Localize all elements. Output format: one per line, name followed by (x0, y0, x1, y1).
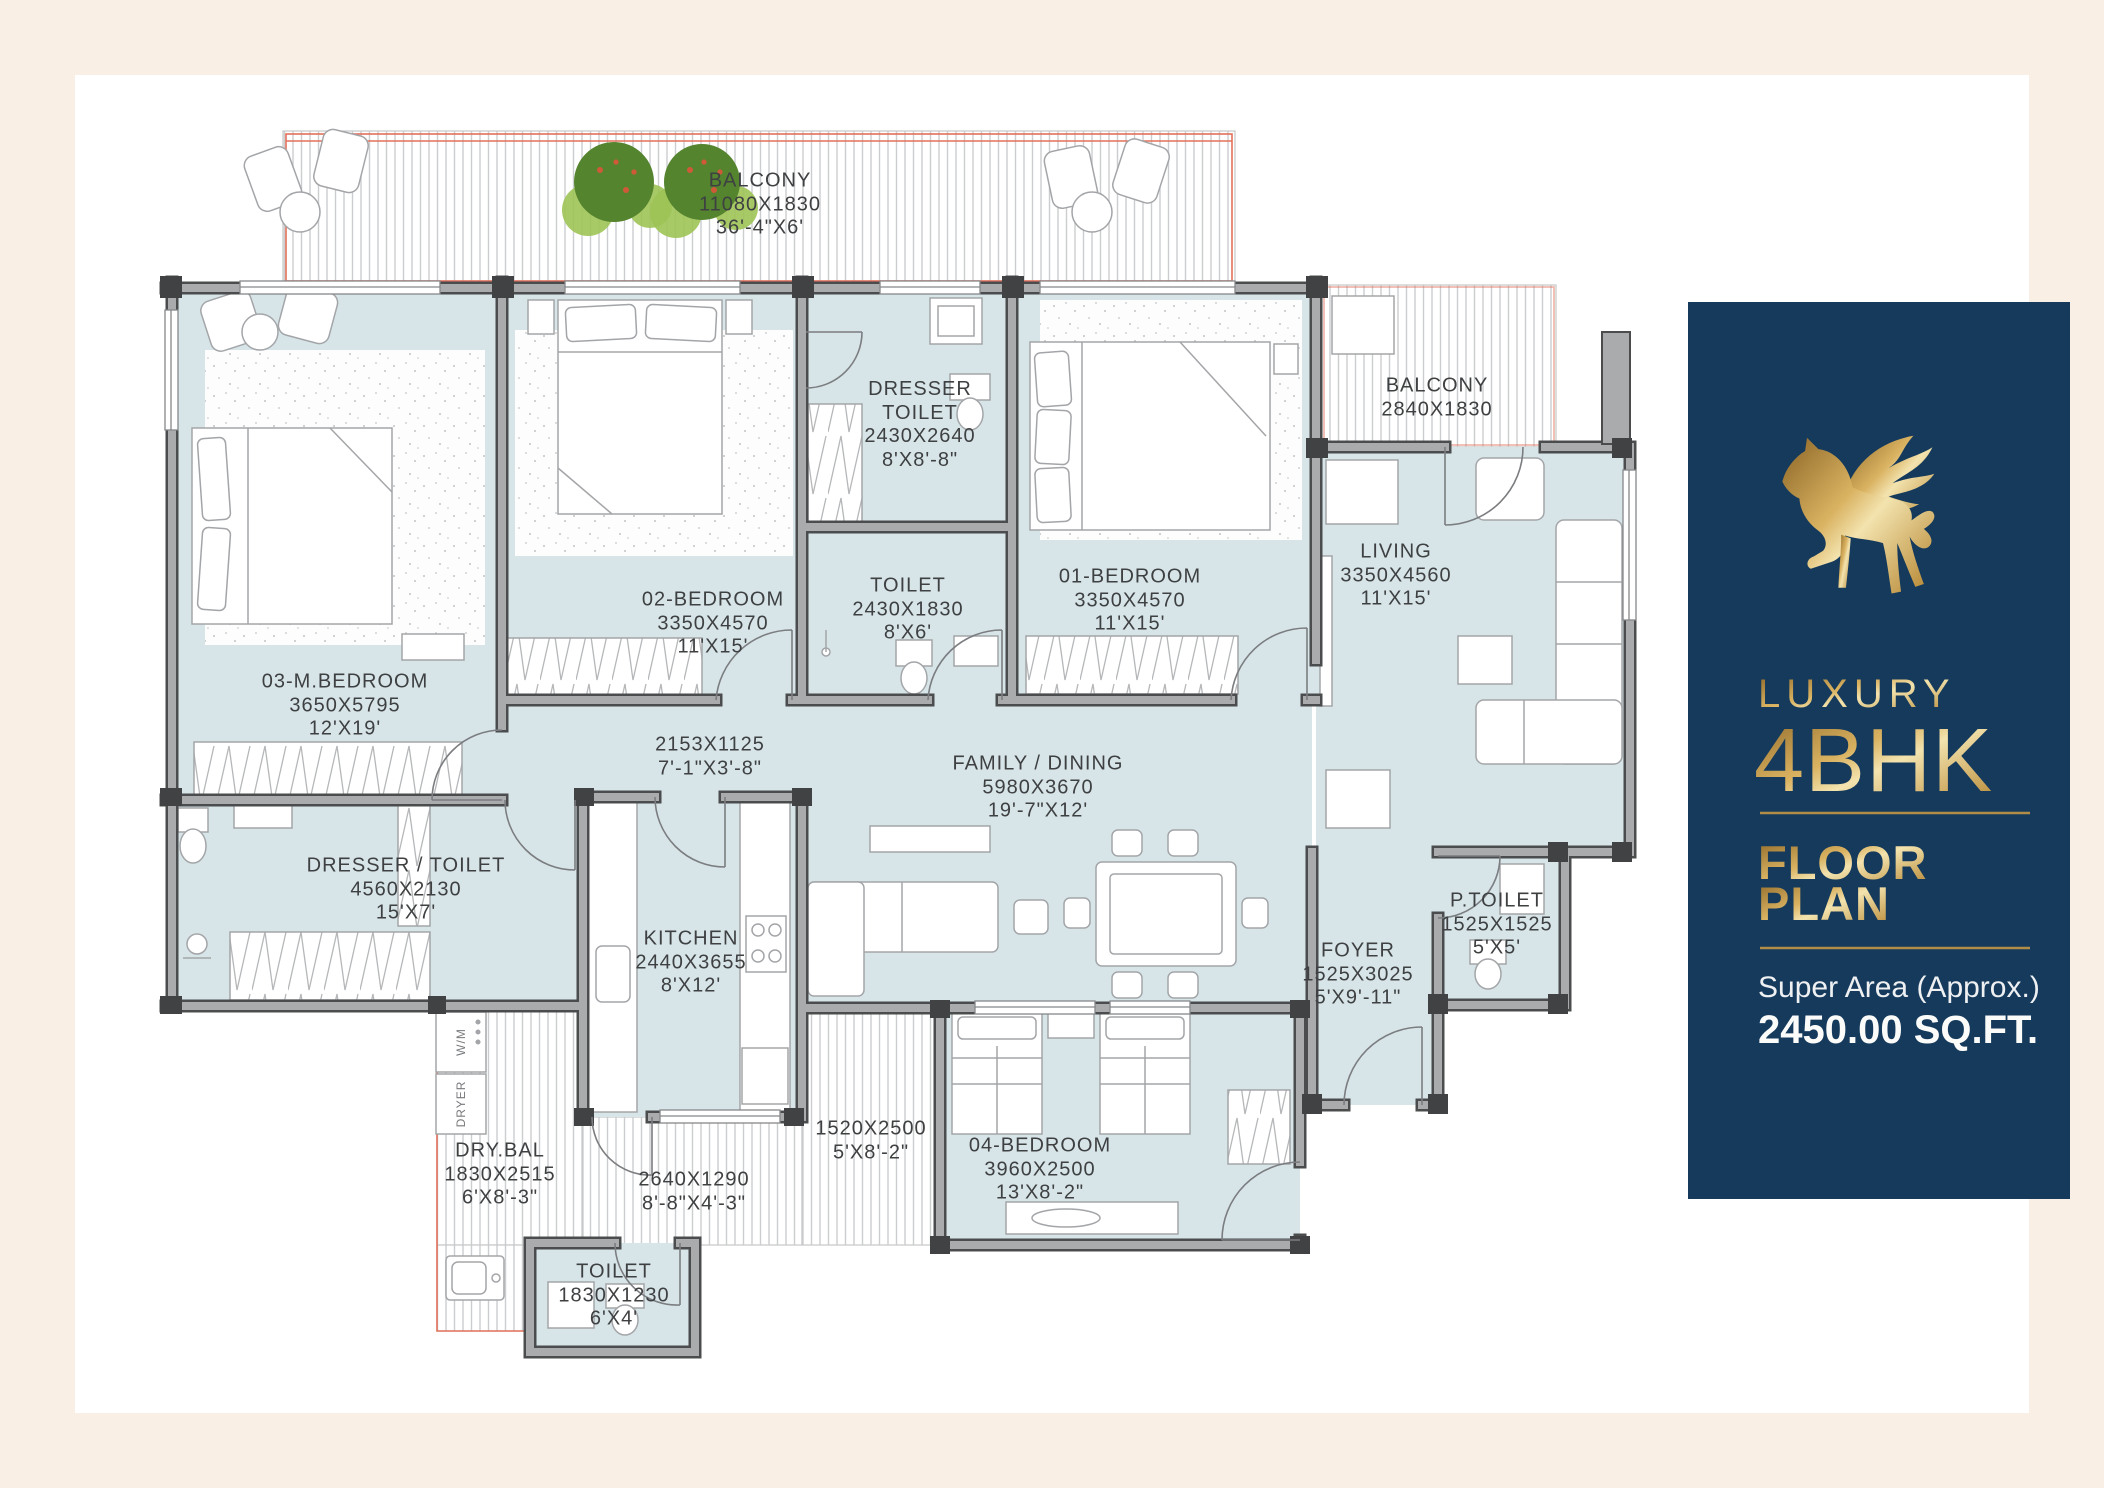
room-metric: 3960X2500 (969, 1158, 1111, 1182)
room-label-toilet-bottom: TOILET 1830X1230 6'X4' (558, 1261, 669, 1332)
floorplan-page: BALCONY 11080X1830 36'-4"X6' BALCONY 284… (0, 0, 2104, 1488)
bed-icon (952, 1012, 1042, 1134)
room-imperial: 8'X8'-8" (852, 449, 988, 473)
room-name: TOILET (558, 1261, 669, 1285)
panel-title-luxury: LUXURY (1758, 672, 1956, 716)
room-label-master-bedroom: 03-M.BEDROOM 3650X5795 12'X19' (262, 671, 428, 742)
room-label-powder-toilet: P.TOILET 1525X1525 5'X5' (1441, 890, 1552, 961)
room-name: BALCONY (1381, 374, 1492, 398)
room-label-dresser-toilet: DRESSER TOILET 2430X2640 8'X8'-8" (852, 378, 988, 472)
room-metric: 4560X2130 (307, 878, 506, 902)
room-name: DRESSER / TOILET (307, 855, 506, 879)
wardrobe-icon (230, 932, 430, 1000)
room-imperial: 36'-4"X6' (699, 217, 821, 241)
super-area-value: 2450.00 SQ.FT. (1758, 1008, 2038, 1052)
room-imperial: 8'X12' (635, 975, 746, 999)
room-metric: 3350X4560 (1340, 564, 1451, 588)
room-label-kitchen: KITCHEN 2440X3655 8'X12' (635, 928, 746, 999)
room-name: FOYER (1302, 940, 1413, 964)
room-metric: 1830X2515 (444, 1163, 555, 1187)
room-imperial: 11'X15' (642, 636, 784, 660)
room-label-living: LIVING 3350X4560 11'X15' (1340, 541, 1451, 612)
washing-machine-label: W/M (454, 1028, 468, 1056)
room-metric: 2430X1830 (852, 598, 963, 622)
room-imperial: 11'X15' (1340, 588, 1451, 612)
room-metric: 2840X1830 (1381, 398, 1492, 422)
hob-icon (746, 916, 786, 972)
balcony-cabinet-icon (1332, 296, 1394, 354)
room-metric: 3650X5795 (262, 694, 428, 718)
room-name: LIVING (1340, 541, 1451, 565)
room-name: DRY.BAL (444, 1140, 555, 1164)
room-imperial: 5'X9'-11" (1302, 987, 1413, 1011)
room-imperial: 6'X8'-3" (444, 1187, 555, 1211)
bed-icon (192, 428, 392, 624)
wardrobe-icon (1026, 636, 1238, 694)
room-label-balcony-top: BALCONY 11080X1830 36'-4"X6' (699, 170, 821, 241)
room-name: 03-M.BEDROOM (262, 671, 428, 695)
room-imperial: 19'-7"X12' (953, 800, 1124, 824)
room-name: 02-BEDROOM (642, 589, 784, 613)
pegasus-logo-icon (1782, 436, 1934, 594)
info-panel-art: LUXURY 4BHK FLOOR PLAN Super Area (Appro… (1688, 302, 2070, 1199)
room-label-balcony-right: BALCONY 2840X1830 (1381, 374, 1492, 421)
room-name: TOILET (852, 575, 963, 599)
fridge-icon (742, 1048, 788, 1104)
room-label-master-dresser: DRESSER / TOILET 4560X2130 15'X7' (307, 855, 506, 926)
room-metric: 5980X3670 (953, 776, 1124, 800)
room-imperial: 7'-1"X3'-8" (655, 757, 765, 781)
room-label-family-dining: FAMILY / DINING 5980X3670 19'-7"X12' (953, 753, 1124, 824)
sink-icon (596, 946, 630, 1002)
room-metric: 1525X1525 (1441, 913, 1552, 937)
room-label-passage: 1520X2500 5'X8'-2" (815, 1117, 926, 1164)
room-imperial: 13'X8'-2" (969, 1182, 1111, 1206)
panel-title-4bhk: 4BHK (1754, 711, 1993, 811)
bed-icon (1030, 342, 1270, 530)
room-name: P.TOILET (1441, 890, 1552, 914)
super-area-label: Super Area (Approx.) (1758, 971, 2040, 1004)
room-label-dry-balcony: DRY.BAL 1830X2515 6'X8'-3" (444, 1140, 555, 1211)
room-label-bedroom01: 01-BEDROOM 3350X4570 11'X15' (1059, 566, 1201, 637)
room-imperial: 5'X8'-2" (815, 1141, 926, 1165)
room-name: DRESSER TOILET (852, 378, 988, 425)
room-name: 04-BEDROOM (969, 1135, 1111, 1159)
room-name: 01-BEDROOM (1059, 566, 1201, 590)
panel-subtitle-plan: PLAN (1758, 877, 1890, 930)
room-imperial: 15'X7' (307, 902, 506, 926)
utility-sink-icon (446, 1256, 504, 1300)
bed-icon (558, 300, 722, 514)
room-imperial: 12'X19' (262, 718, 428, 742)
room-metric: 3350X4570 (642, 612, 784, 636)
room-label-corridor2640: 2640X1290 8'-8"X4'-3" (638, 1168, 749, 1215)
room-imperial: 11'X15' (1059, 613, 1201, 637)
room-metric: 2153X1125 (655, 733, 765, 757)
room-label-bedroom04: 04-BEDROOM 3960X2500 13'X8'-2" (969, 1135, 1111, 1206)
room-metric: 2640X1290 (638, 1168, 749, 1192)
wardrobe-icon (1228, 1090, 1290, 1164)
room-metric: 1525X3025 (1302, 963, 1413, 987)
room-metric: 1520X2500 (815, 1117, 926, 1141)
room-label-bedroom02: 02-BEDROOM 3350X4570 11'X15' (642, 589, 784, 660)
room-imperial: 8'X6' (852, 622, 963, 646)
room-metric: 1830X1230 (558, 1284, 669, 1308)
dryer-label: DRYER (454, 1081, 468, 1128)
room-label-toilet-mid: TOILET 2430X1830 8'X6' (852, 575, 963, 646)
room-label-foyer: FOYER 1525X3025 5'X9'-11" (1302, 940, 1413, 1011)
room-label-corridor: 2153X1125 7'-1"X3'-8" (655, 733, 765, 780)
room-name: BALCONY (699, 170, 821, 194)
room-imperial: 5'X5' (1441, 937, 1552, 961)
room-metric: 11080X1830 (699, 193, 821, 217)
room-imperial: 8'-8"X4'-3" (638, 1192, 749, 1216)
room-metric: 3350X4570 (1059, 589, 1201, 613)
wardrobe-icon (194, 742, 462, 798)
room-metric: 2430X2640 (852, 425, 988, 449)
room-imperial: 6'X4' (558, 1308, 669, 1332)
room-name: KITCHEN (635, 928, 746, 952)
bed-icon (1100, 1012, 1190, 1134)
info-panel: LUXURY 4BHK FLOOR PLAN Super Area (Appro… (1688, 302, 2070, 1199)
room-metric: 2440X3655 (635, 951, 746, 975)
room-name: FAMILY / DINING (953, 753, 1124, 777)
